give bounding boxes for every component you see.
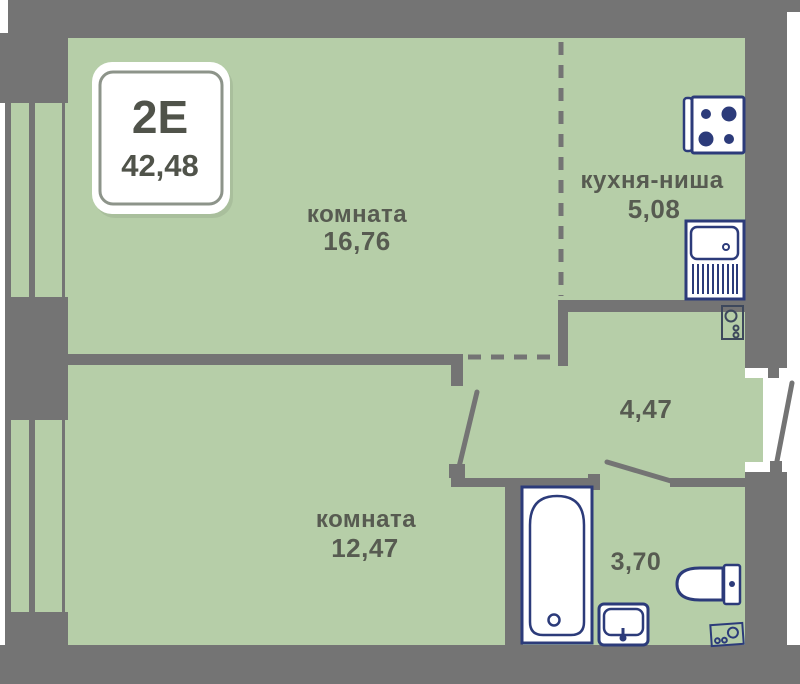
room2-name: комната xyxy=(316,506,416,533)
window-frame-line xyxy=(29,103,35,297)
entrance-door-leaf xyxy=(777,383,792,461)
kitchen-sink-icon xyxy=(686,221,744,299)
window-glass-strip xyxy=(11,420,29,612)
floor-plan: 2Е 42,48 комната 16,76 кухня-ниша 5,08 4… xyxy=(0,0,800,684)
wall-kitchen-vertical xyxy=(558,300,568,366)
apartment-type-badge: 2Е 42,48 xyxy=(92,62,233,218)
wall-room-divider-stub xyxy=(451,365,463,386)
bathroom-area: 3,70 xyxy=(611,548,662,576)
badge-type-label: 2Е xyxy=(132,91,188,143)
room1-name: комната xyxy=(307,201,407,228)
washbasin-icon xyxy=(599,604,648,645)
room2-area: 12,47 xyxy=(331,533,399,563)
wall-bottom xyxy=(0,645,800,684)
wall-bathroom-left xyxy=(505,487,523,645)
window-glass-strip xyxy=(35,103,62,297)
window-glass-strip xyxy=(35,420,62,612)
window-frame-line xyxy=(5,420,11,612)
room1-area: 16,76 xyxy=(323,226,391,256)
window-frame-line xyxy=(62,103,65,297)
hall-area: 4,47 xyxy=(620,394,673,424)
entrance-threshold xyxy=(745,378,763,462)
wall-top xyxy=(8,12,787,38)
toilet-icon xyxy=(677,565,740,604)
window-glass-strip xyxy=(11,103,29,297)
bathtub-icon xyxy=(522,487,592,643)
wall-top-strip xyxy=(8,0,800,12)
wall-bath-right-segment xyxy=(670,478,745,487)
wall-kitchen-horizontal xyxy=(558,300,745,312)
wall-right-upper xyxy=(745,12,787,368)
wall-left-upper xyxy=(0,33,68,103)
stove-hob-icon xyxy=(684,97,744,153)
wall-room-divider xyxy=(62,354,463,365)
window-frame-line xyxy=(29,420,35,612)
wall-left-lower xyxy=(5,612,68,645)
kitchen-area: 5,08 xyxy=(628,194,681,224)
wall-right-lower xyxy=(745,472,787,645)
wall-entrance-jamb-top xyxy=(768,368,779,378)
kitchen-name: кухня-ниша xyxy=(580,167,723,194)
badge-total-area: 42,48 xyxy=(121,148,199,183)
window-frame-line xyxy=(62,420,65,612)
floor-plan-canvas: 2Е 42,48 комната 16,76 кухня-ниша 5,08 4… xyxy=(0,0,800,684)
wall-left-pier xyxy=(5,297,68,420)
window-frame-line xyxy=(5,103,11,297)
